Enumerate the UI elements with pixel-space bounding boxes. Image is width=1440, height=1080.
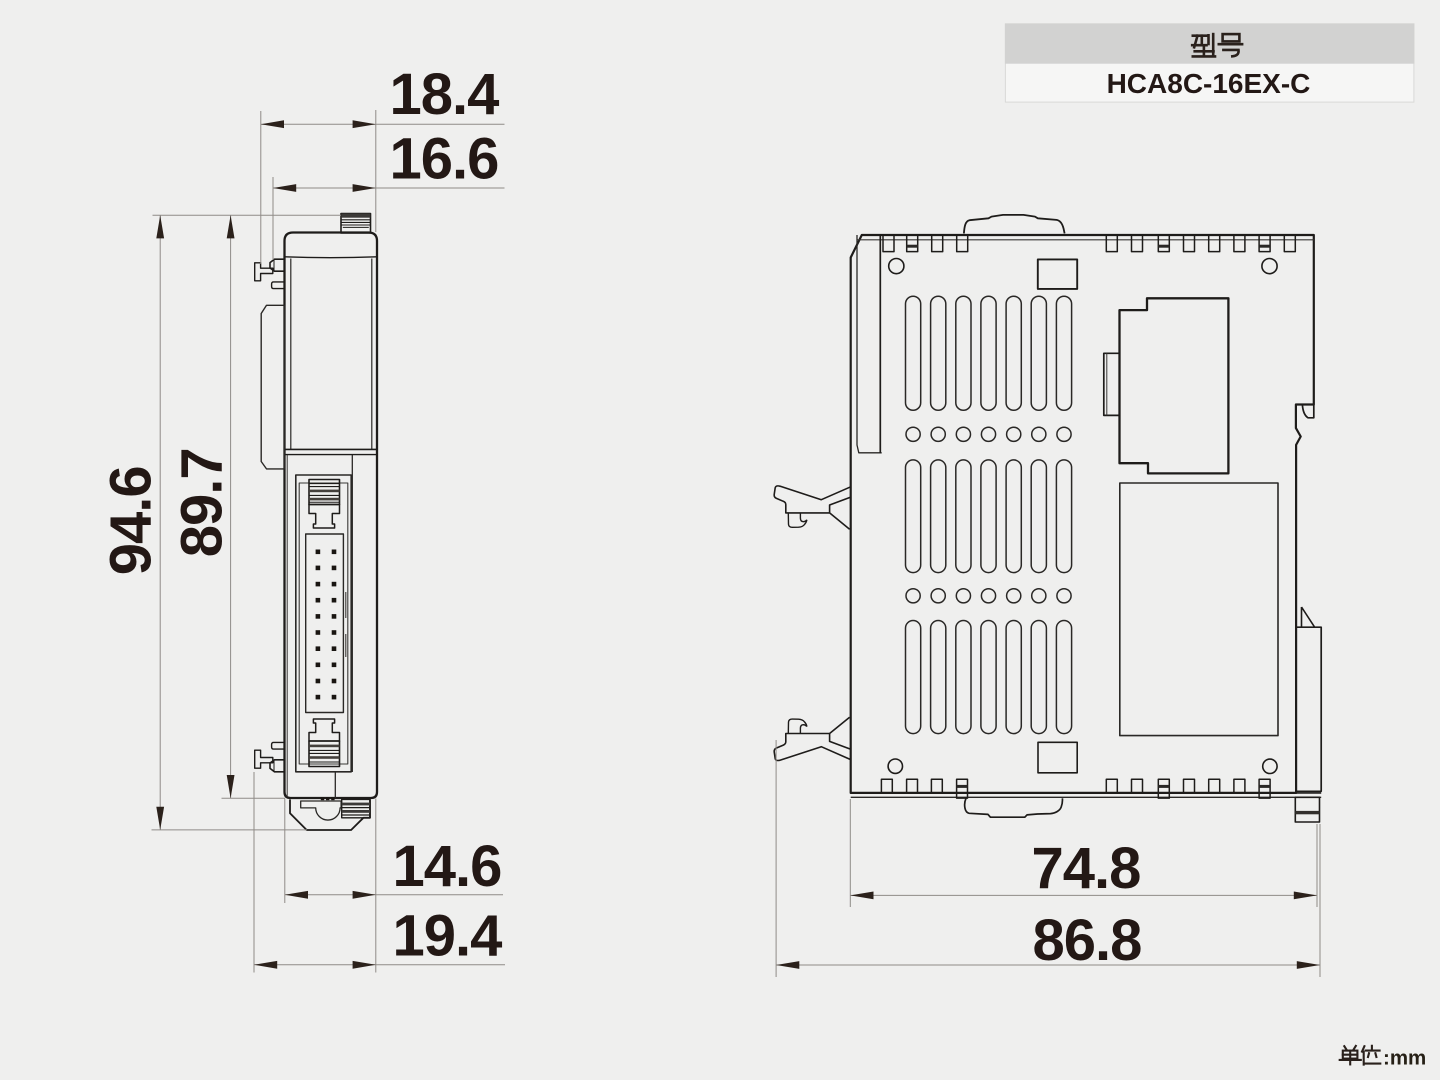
svg-text:94.6: 94.6: [99, 466, 164, 575]
svg-text::mm: :mm: [1383, 1047, 1426, 1070]
svg-text:14.6: 14.6: [393, 834, 502, 899]
svg-text:16.6: 16.6: [390, 127, 499, 192]
svg-text:18.4: 18.4: [390, 62, 500, 127]
svg-text:74.8: 74.8: [1032, 836, 1141, 901]
svg-text:89.7: 89.7: [170, 448, 235, 557]
svg-text:19.4: 19.4: [393, 904, 503, 969]
svg-text:86.8: 86.8: [1033, 908, 1142, 973]
svg-text:HCA8C-16EX-C: HCA8C-16EX-C: [1107, 68, 1311, 99]
